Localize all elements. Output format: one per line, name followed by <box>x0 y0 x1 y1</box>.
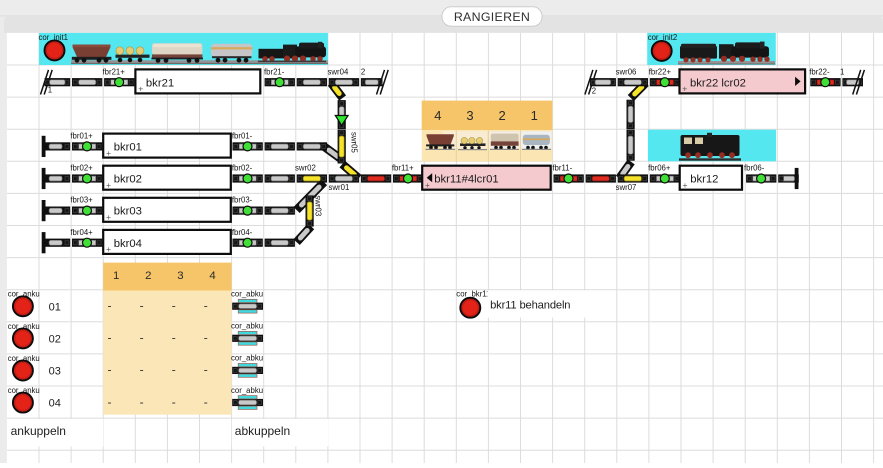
svg-text:fbr11-: fbr11- <box>552 164 572 173</box>
svg-text:-: - <box>204 363 208 377</box>
svg-text:-: - <box>140 363 144 377</box>
svg-text:+: + <box>106 212 111 222</box>
svg-text:cor_abku: cor_abku <box>231 322 263 331</box>
svg-text:bkr03: bkr03 <box>114 206 142 218</box>
svg-text:1: 1 <box>531 108 538 123</box>
svg-text:fbr06+: fbr06+ <box>648 164 671 173</box>
svg-text:bkr04: bkr04 <box>114 238 142 250</box>
svg-text:-: - <box>172 363 176 377</box>
svg-text:fbr22+: fbr22+ <box>649 67 672 76</box>
svg-text:+: + <box>106 148 111 158</box>
svg-text:bkr11#4lcr01: bkr11#4lcr01 <box>434 174 498 186</box>
svg-text:-: - <box>108 299 112 313</box>
svg-text:fbr22-: fbr22- <box>809 67 830 76</box>
svg-text:swr02: swr02 <box>295 164 316 173</box>
svg-text:4: 4 <box>434 108 441 123</box>
svg-text:fbr11+: fbr11+ <box>392 164 414 173</box>
svg-text:02: 02 <box>49 333 61 345</box>
svg-text:-: - <box>140 299 144 313</box>
svg-text:cor_abku: cor_abku <box>231 354 263 363</box>
svg-text:-: - <box>172 395 176 409</box>
svg-text:-: - <box>108 363 112 377</box>
svg-text:3: 3 <box>177 270 183 282</box>
svg-text:1: 1 <box>840 67 844 76</box>
svg-text:fbr04-: fbr04- <box>232 228 253 237</box>
svg-text:fbr06-: fbr06- <box>744 164 765 173</box>
svg-text:-: - <box>204 299 208 313</box>
svg-text:fbr21-: fbr21- <box>264 67 285 76</box>
svg-text:swr03: swr03 <box>313 195 322 216</box>
svg-text:bkr12: bkr12 <box>690 174 718 186</box>
svg-text:bkr02: bkr02 <box>114 174 142 186</box>
svg-text:+: + <box>425 180 430 190</box>
svg-text:bkr11 behandeln: bkr11 behandeln <box>490 299 570 311</box>
svg-text:bkr21: bkr21 <box>146 77 174 89</box>
svg-text:fbr02-: fbr02- <box>232 164 253 173</box>
svg-text:fbr02+: fbr02+ <box>70 164 93 173</box>
svg-text:1: 1 <box>113 270 119 282</box>
svg-text:+: + <box>106 180 111 190</box>
svg-text:swr05: swr05 <box>350 132 359 153</box>
svg-text:01: 01 <box>49 301 61 313</box>
svg-text:03: 03 <box>49 366 61 378</box>
svg-text:swr01: swr01 <box>329 183 350 192</box>
svg-text:fbr01-: fbr01- <box>232 132 253 141</box>
svg-text:fbr21+: fbr21+ <box>103 67 126 76</box>
svg-text:2: 2 <box>498 108 505 123</box>
svg-text:ankuppeln: ankuppeln <box>11 424 66 438</box>
svg-text:-: - <box>172 299 176 313</box>
svg-text:+: + <box>106 244 111 254</box>
svg-text:cor_abku: cor_abku <box>231 386 263 395</box>
svg-text:-: - <box>140 331 144 345</box>
svg-text:+: + <box>683 180 688 190</box>
svg-text:1: 1 <box>48 86 52 95</box>
svg-text:fbr03+: fbr03+ <box>70 196 93 205</box>
svg-text:04: 04 <box>49 398 61 410</box>
svg-text:2: 2 <box>361 67 365 76</box>
svg-text:fbr04+: fbr04+ <box>70 228 93 237</box>
svg-text:fbr01+: fbr01+ <box>70 132 93 141</box>
svg-text:swr06: swr06 <box>616 67 637 76</box>
svg-text:bkr01: bkr01 <box>114 142 142 154</box>
svg-text:-: - <box>108 395 112 409</box>
svg-text:2: 2 <box>592 87 596 96</box>
svg-text:-: - <box>204 331 208 345</box>
svg-text:RANGIEREN: RANGIEREN <box>454 10 530 24</box>
svg-text:abkuppeln: abkuppeln <box>235 424 290 438</box>
svg-text:+: + <box>682 84 687 94</box>
svg-text:-: - <box>204 395 208 409</box>
svg-text:fbr03-: fbr03- <box>232 196 253 205</box>
svg-text:-: - <box>172 331 176 345</box>
svg-text:swr07: swr07 <box>616 183 637 192</box>
svg-text:-: - <box>108 331 112 345</box>
svg-text:swr04: swr04 <box>328 67 349 76</box>
svg-text:4: 4 <box>209 270 215 282</box>
svg-text:-: - <box>140 395 144 409</box>
svg-text:bkr22 lcr02: bkr22 lcr02 <box>690 77 746 89</box>
svg-text:3: 3 <box>466 108 473 123</box>
svg-text:cor_abku: cor_abku <box>231 290 263 299</box>
svg-text:+: + <box>138 84 143 94</box>
svg-text:2: 2 <box>145 270 151 282</box>
